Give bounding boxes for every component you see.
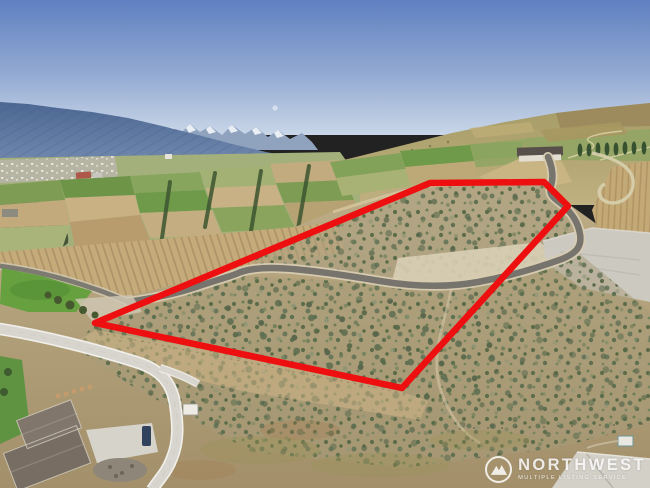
brush-pile <box>93 458 147 482</box>
warehouse-building <box>76 171 91 179</box>
farmhouse <box>517 146 563 162</box>
aerial-photo: NORTHWEST MULTIPLE LISTING SERVICE <box>0 0 650 488</box>
small-shed <box>618 436 633 446</box>
parked-vehicle <box>142 426 151 446</box>
moon <box>272 105 277 110</box>
small-building <box>165 154 172 159</box>
utility-pad <box>183 404 198 415</box>
